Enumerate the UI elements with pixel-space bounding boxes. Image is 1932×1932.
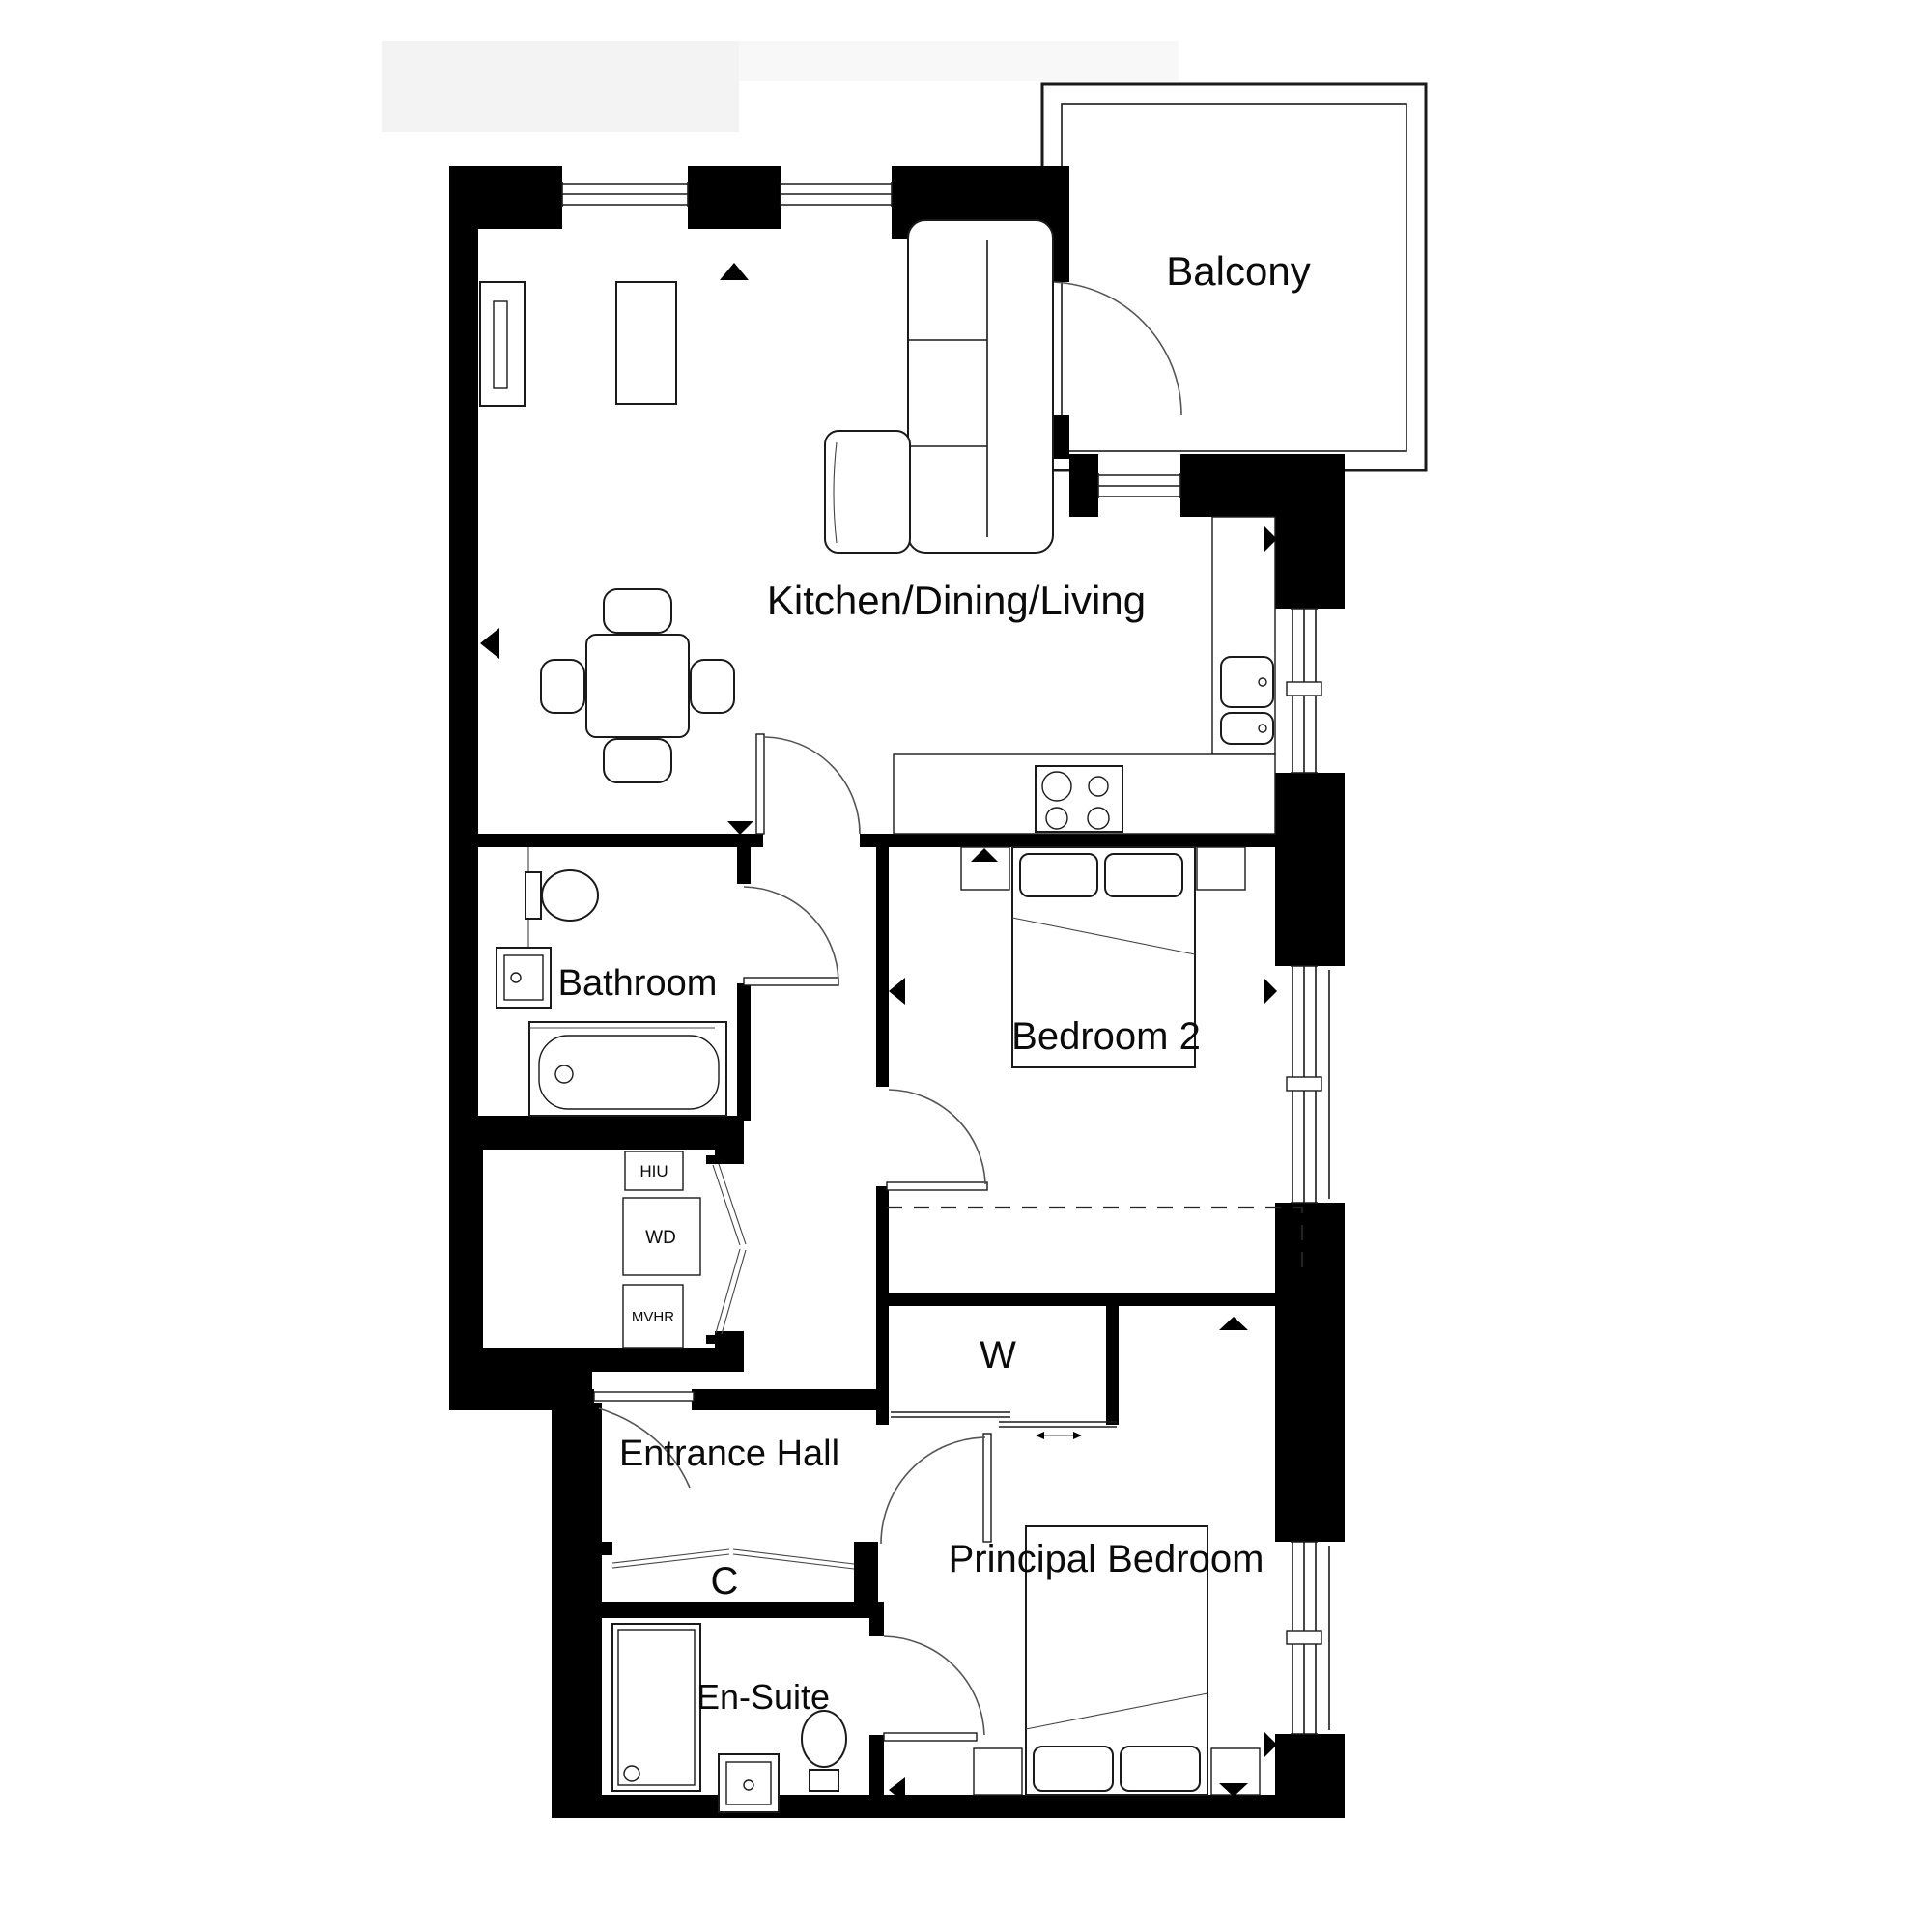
- living-furniture: [480, 220, 1053, 782]
- basin-icon: [497, 948, 551, 1008]
- sofa-icon: [825, 220, 1053, 553]
- balcony-label: Balcony: [1166, 248, 1310, 294]
- principal-bedroom-door: [881, 1434, 991, 1544]
- wardrobe-label: W: [980, 1334, 1016, 1377]
- living-room-door: [756, 734, 860, 834]
- principal-bedroom-label: Principal Bedroom: [949, 1538, 1264, 1580]
- bathroom-door: [744, 887, 838, 985]
- entrance-hall-label: Entrance Hall: [619, 1434, 839, 1474]
- wd-label: WD: [645, 1228, 676, 1248]
- window-bedroom-2: [1275, 966, 1345, 1203]
- bedroom-2-label: Bedroom 2: [1011, 1015, 1201, 1058]
- dining-table-icon: [541, 589, 734, 782]
- floor-plan-drawing: Balcony Kitchen/Dining/Living Bathroom B…: [0, 0, 1932, 1932]
- bedside-table-icon: [1197, 847, 1245, 890]
- window-principal-bedroom: [1275, 1542, 1345, 1734]
- toilet-icon: [526, 870, 598, 921]
- en-suite-door: [884, 1636, 984, 1741]
- floor-plan-page: Balcony Kitchen/Dining/Living Bathroom B…: [0, 0, 1932, 1932]
- shower-icon: [612, 1624, 700, 1791]
- cupboard-label: C: [711, 1560, 739, 1603]
- bathroom-label: Bathroom: [558, 963, 718, 1004]
- kitchen-sink-icon: [1221, 657, 1273, 744]
- window-kitchen-side: [1275, 609, 1345, 773]
- bedside-table-icon: [974, 1748, 1022, 1795]
- en-suite-label: En-Suite: [696, 1677, 830, 1717]
- window-living-1: [562, 166, 688, 229]
- bulkhead-dashed-line: [887, 1207, 1302, 1267]
- toilet-icon: [802, 1711, 846, 1791]
- hiu-label: HIU: [639, 1162, 668, 1180]
- window-living-2: [781, 166, 892, 229]
- sideboard-icon: [616, 282, 676, 404]
- en-suite-fixtures: [612, 1624, 846, 1812]
- hob-icon: [1036, 766, 1122, 832]
- window-kitchen-top: [1098, 454, 1180, 517]
- basin-icon: [719, 1754, 779, 1812]
- bathtub-icon: [529, 1022, 726, 1116]
- mvhr-label: MVHR: [632, 1309, 674, 1325]
- utility-bifold-doors: [706, 1155, 746, 1344]
- bedroom-2-door: [887, 1090, 987, 1190]
- tv-unit-icon: [480, 282, 525, 406]
- wardrobe-sliding-doors: [891, 1412, 1117, 1439]
- kitchen-fixtures: [894, 517, 1275, 834]
- kitchen-dining-living-label: Kitchen/Dining/Living: [767, 578, 1146, 623]
